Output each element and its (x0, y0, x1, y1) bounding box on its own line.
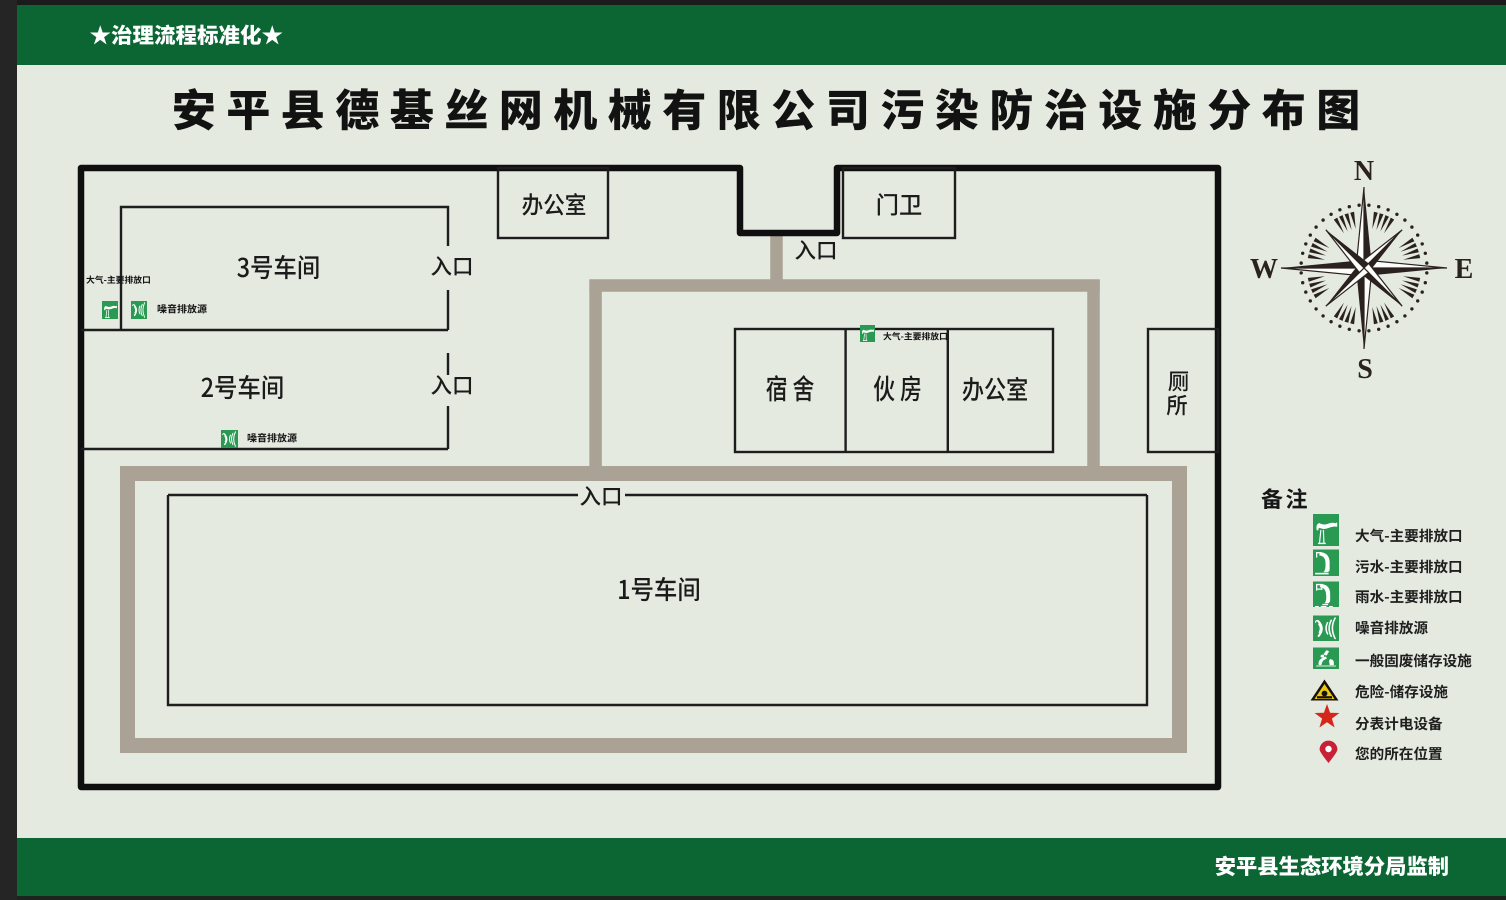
svg-text:W: W (1250, 254, 1278, 285)
svg-text:E: E (1455, 254, 1474, 285)
svg-text:S: S (1357, 354, 1373, 385)
svg-text:N: N (1354, 156, 1374, 187)
